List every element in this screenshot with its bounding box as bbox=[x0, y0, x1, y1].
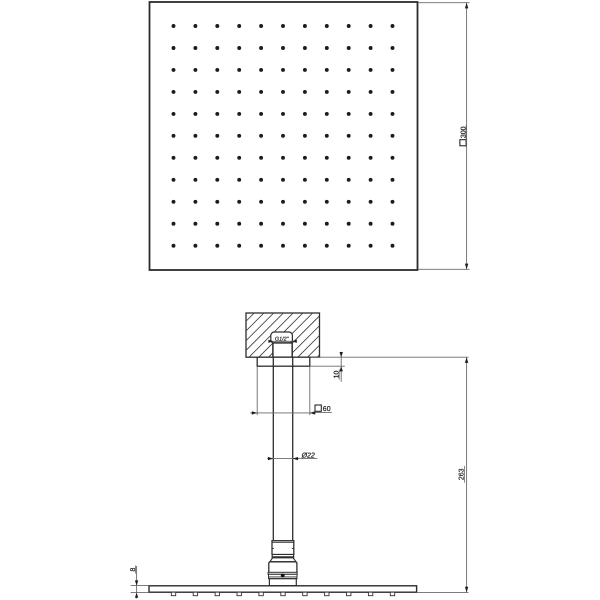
svg-text:G1/2": G1/2" bbox=[275, 336, 290, 342]
svg-text:Ø22: Ø22 bbox=[301, 451, 315, 459]
